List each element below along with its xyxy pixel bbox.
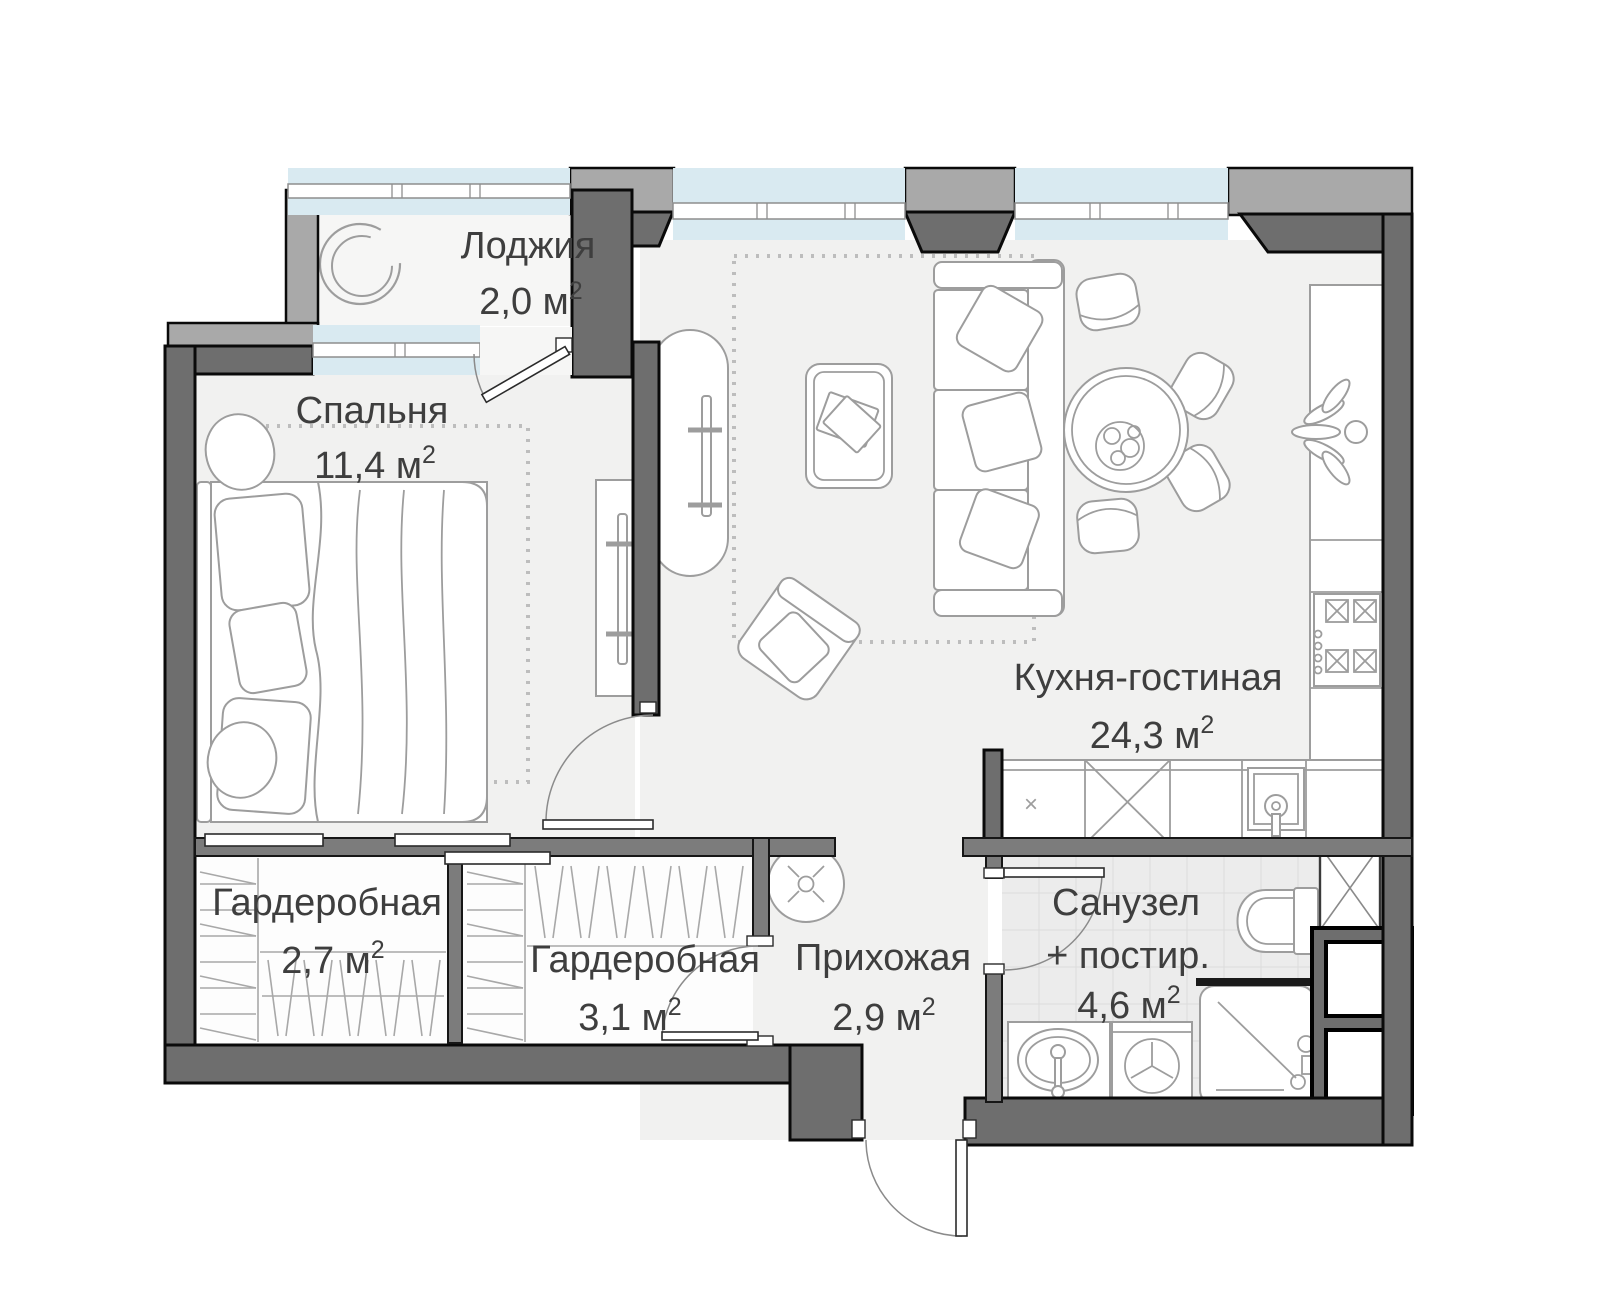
- area-label-hallway: 2,9 м2: [832, 993, 935, 1039]
- area-label-bedroom: 11,4 м2: [314, 441, 436, 487]
- area-label-kitchen-living: 24,3 м2: [1090, 711, 1215, 757]
- living-window1-frame: [673, 203, 905, 219]
- pier-corner: [1228, 168, 1412, 215]
- stove-icon: [1314, 594, 1380, 686]
- room-label-wardrobe2: Гардеробная: [530, 939, 760, 981]
- room-label-bathroom-line1: Санузел: [1052, 882, 1200, 924]
- kitchen-stub-wall: [984, 750, 1002, 842]
- room-label-kitchen-living: Кухня-гостиная: [1014, 657, 1283, 699]
- room-label-hallway: Прихожая: [795, 937, 971, 979]
- sliding-panel-3: [445, 852, 550, 864]
- kitchen-sink-icon: [1248, 768, 1304, 836]
- area-label-wardrobe1: 2,7 м2: [281, 936, 384, 982]
- vestibule-wall: [790, 1045, 862, 1140]
- washing-machine-icon: [1112, 1022, 1192, 1102]
- shower-partition-top: [1196, 978, 1324, 986]
- shower-icon: [1196, 978, 1324, 1110]
- east-wall: [1383, 214, 1412, 1145]
- cabinet-mark: ×: [1024, 791, 1038, 818]
- bedroom-window-frame: [313, 343, 480, 357]
- floor-plan-page: ×: [0, 0, 1600, 1300]
- wardrobe2-hall-wall: [753, 838, 769, 942]
- kitchen-bottom-counter: ×: [986, 760, 1383, 844]
- floor-plan-svg: ×: [0, 0, 1600, 1300]
- living-window2-frame: [1015, 203, 1228, 219]
- kitchen-tall-counter: [1310, 285, 1383, 762]
- sliding-panel-2: [395, 834, 510, 846]
- room-label-loggia: Лоджия: [461, 225, 596, 267]
- south-wall-left: [165, 1045, 813, 1083]
- room-label-bedroom: Спальня: [296, 390, 449, 432]
- room-label-wardrobe1: Гардеробная: [212, 882, 442, 924]
- bath-north-wall: [963, 838, 1412, 856]
- area-label-wardrobe2: 3,1 м2: [578, 993, 681, 1039]
- west-wall: [165, 346, 195, 1083]
- loggia-window-frame: [288, 184, 570, 198]
- toilet-icon: [1238, 888, 1319, 954]
- coffee-table-icon: [806, 364, 892, 488]
- sofa-icon: [934, 260, 1064, 616]
- bathroom-sink-icon: [1008, 1022, 1110, 1102]
- ceiling-light-icon: [768, 846, 844, 922]
- sliding-panel-1: [205, 834, 323, 846]
- pier-2: [905, 168, 1015, 214]
- bedroom-partition: [633, 342, 659, 715]
- sideboard-icon: [652, 330, 728, 576]
- bath-west-wall-b: [986, 968, 1002, 1102]
- area-label-bathroom: 4,6 м2: [1077, 981, 1180, 1027]
- wardrobe-divider: [448, 856, 462, 1043]
- area-label-loggia: 2,0 м2: [479, 277, 582, 323]
- room-label-bathroom-line2: + постир.: [1046, 935, 1210, 977]
- south-wall-right: [965, 1098, 1412, 1145]
- pier2-inner: [905, 212, 1015, 252]
